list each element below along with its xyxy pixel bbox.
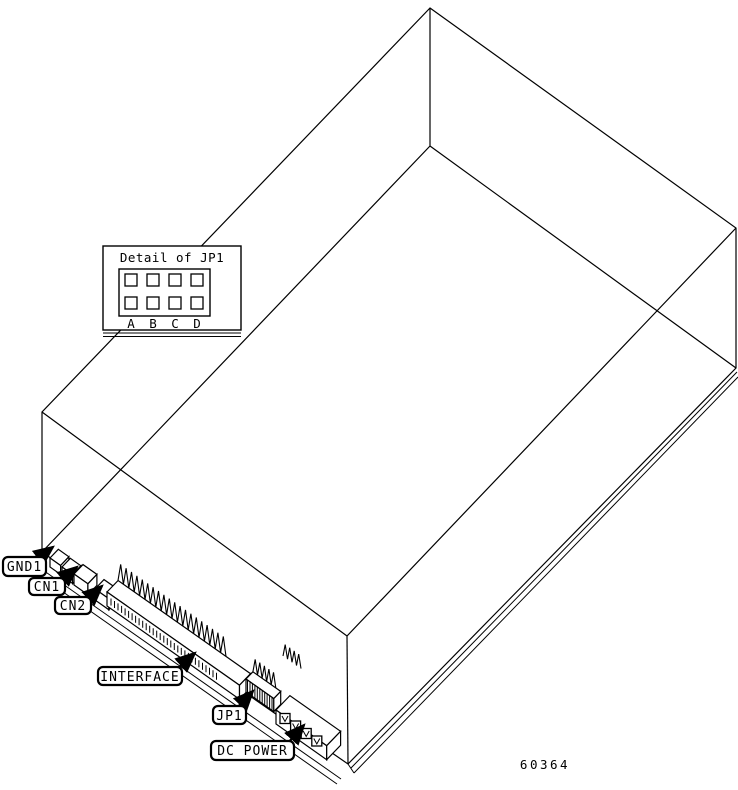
jumper-column-d: D bbox=[193, 316, 201, 331]
drive-connector-diagram: Detail of JP1 A B C D GND1 bbox=[0, 0, 738, 790]
detail-inset-baseplate bbox=[103, 333, 241, 337]
cn2-label: CN2 bbox=[60, 599, 86, 614]
callout-cn2: CN2 bbox=[55, 597, 91, 614]
chassis-front-vertical-edge bbox=[347, 636, 348, 764]
gnd1-label: GND1 bbox=[7, 560, 42, 575]
jumper-column-c: C bbox=[171, 316, 179, 331]
jumper-column-b: B bbox=[149, 316, 157, 331]
interface-label: INTERFACE bbox=[100, 670, 179, 685]
callout-jp1: JP1 bbox=[213, 706, 246, 724]
dc-power-pin-row bbox=[283, 645, 301, 669]
callout-gnd1: GND1 bbox=[3, 557, 46, 576]
pcb-right-edge bbox=[348, 372, 738, 773]
callout-interface: INTERFACE bbox=[98, 667, 182, 685]
technical-diagram-page: Detail of JP1 A B C D GND1 bbox=[0, 0, 738, 790]
callout-dc-power: DC POWER bbox=[211, 741, 294, 760]
dc-power-label: DC POWER bbox=[217, 744, 288, 759]
jp1-label: JP1 bbox=[216, 709, 242, 724]
cn1-label: CN1 bbox=[34, 580, 60, 595]
jumper-column-a: A bbox=[127, 316, 135, 331]
detail-inset: Detail of JP1 A B C D bbox=[103, 246, 241, 337]
part-number: 60364 bbox=[520, 757, 570, 772]
detail-inset-title: Detail of JP1 bbox=[120, 250, 224, 265]
callout-cn1: CN1 bbox=[29, 578, 65, 595]
